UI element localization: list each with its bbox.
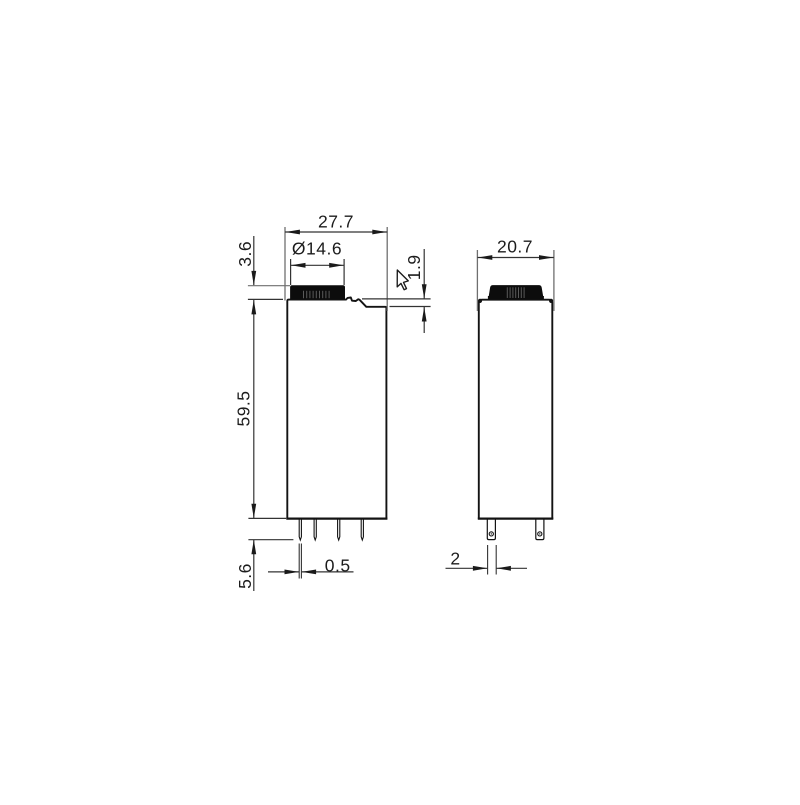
svg-text:5.6: 5.6	[235, 563, 255, 589]
svg-text:1.9: 1.9	[404, 254, 424, 280]
svg-text:0.5: 0.5	[325, 556, 351, 576]
svg-text:27.7: 27.7	[318, 212, 354, 232]
svg-text:20.7: 20.7	[497, 237, 533, 257]
svg-text:2: 2	[450, 549, 460, 569]
svg-text:Ø14.6: Ø14.6	[292, 239, 342, 259]
svg-text:3.6: 3.6	[235, 241, 255, 267]
svg-text:59.5: 59.5	[234, 390, 254, 426]
